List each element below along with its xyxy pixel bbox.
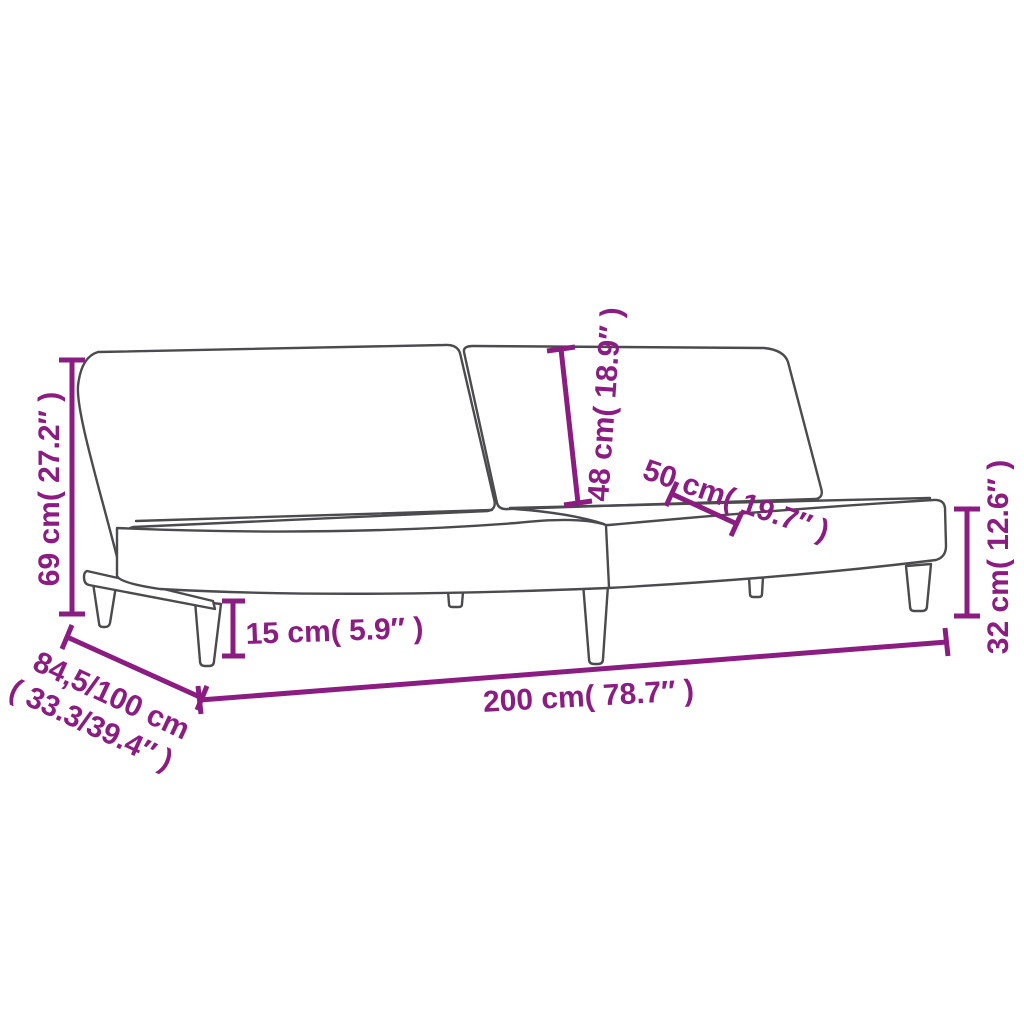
sofa-leg <box>906 564 931 611</box>
sofa-dimension-svg: 69 cm( 27.2″ ) 84,5/100 cm ( 33.3/39.4″ … <box>0 0 1024 1024</box>
label-depth: 84,5/100 cm ( 33.3/39.4″ ) <box>4 641 194 778</box>
sofa-leg <box>749 577 763 597</box>
dimension-seat-height <box>954 509 980 616</box>
label-total-width: 200 cm( 78.7″ ) <box>482 674 695 719</box>
product-dimension-diagram: 69 cm( 27.2″ ) 84,5/100 cm ( 33.3/39.4″ … <box>0 0 1024 1024</box>
dimension-leg-height <box>222 601 245 656</box>
sofa-leg <box>583 583 608 664</box>
label-total-height: 69 cm( 27.2″ ) <box>33 392 66 586</box>
label-leg-height: 15 cm( 5.9″ ) <box>245 612 424 651</box>
sofa-drawing <box>78 345 946 666</box>
left-backrest <box>78 345 495 557</box>
label-seat-height: 32 cm( 12.6″ ) <box>982 460 1015 654</box>
sofa-leg <box>195 601 221 666</box>
